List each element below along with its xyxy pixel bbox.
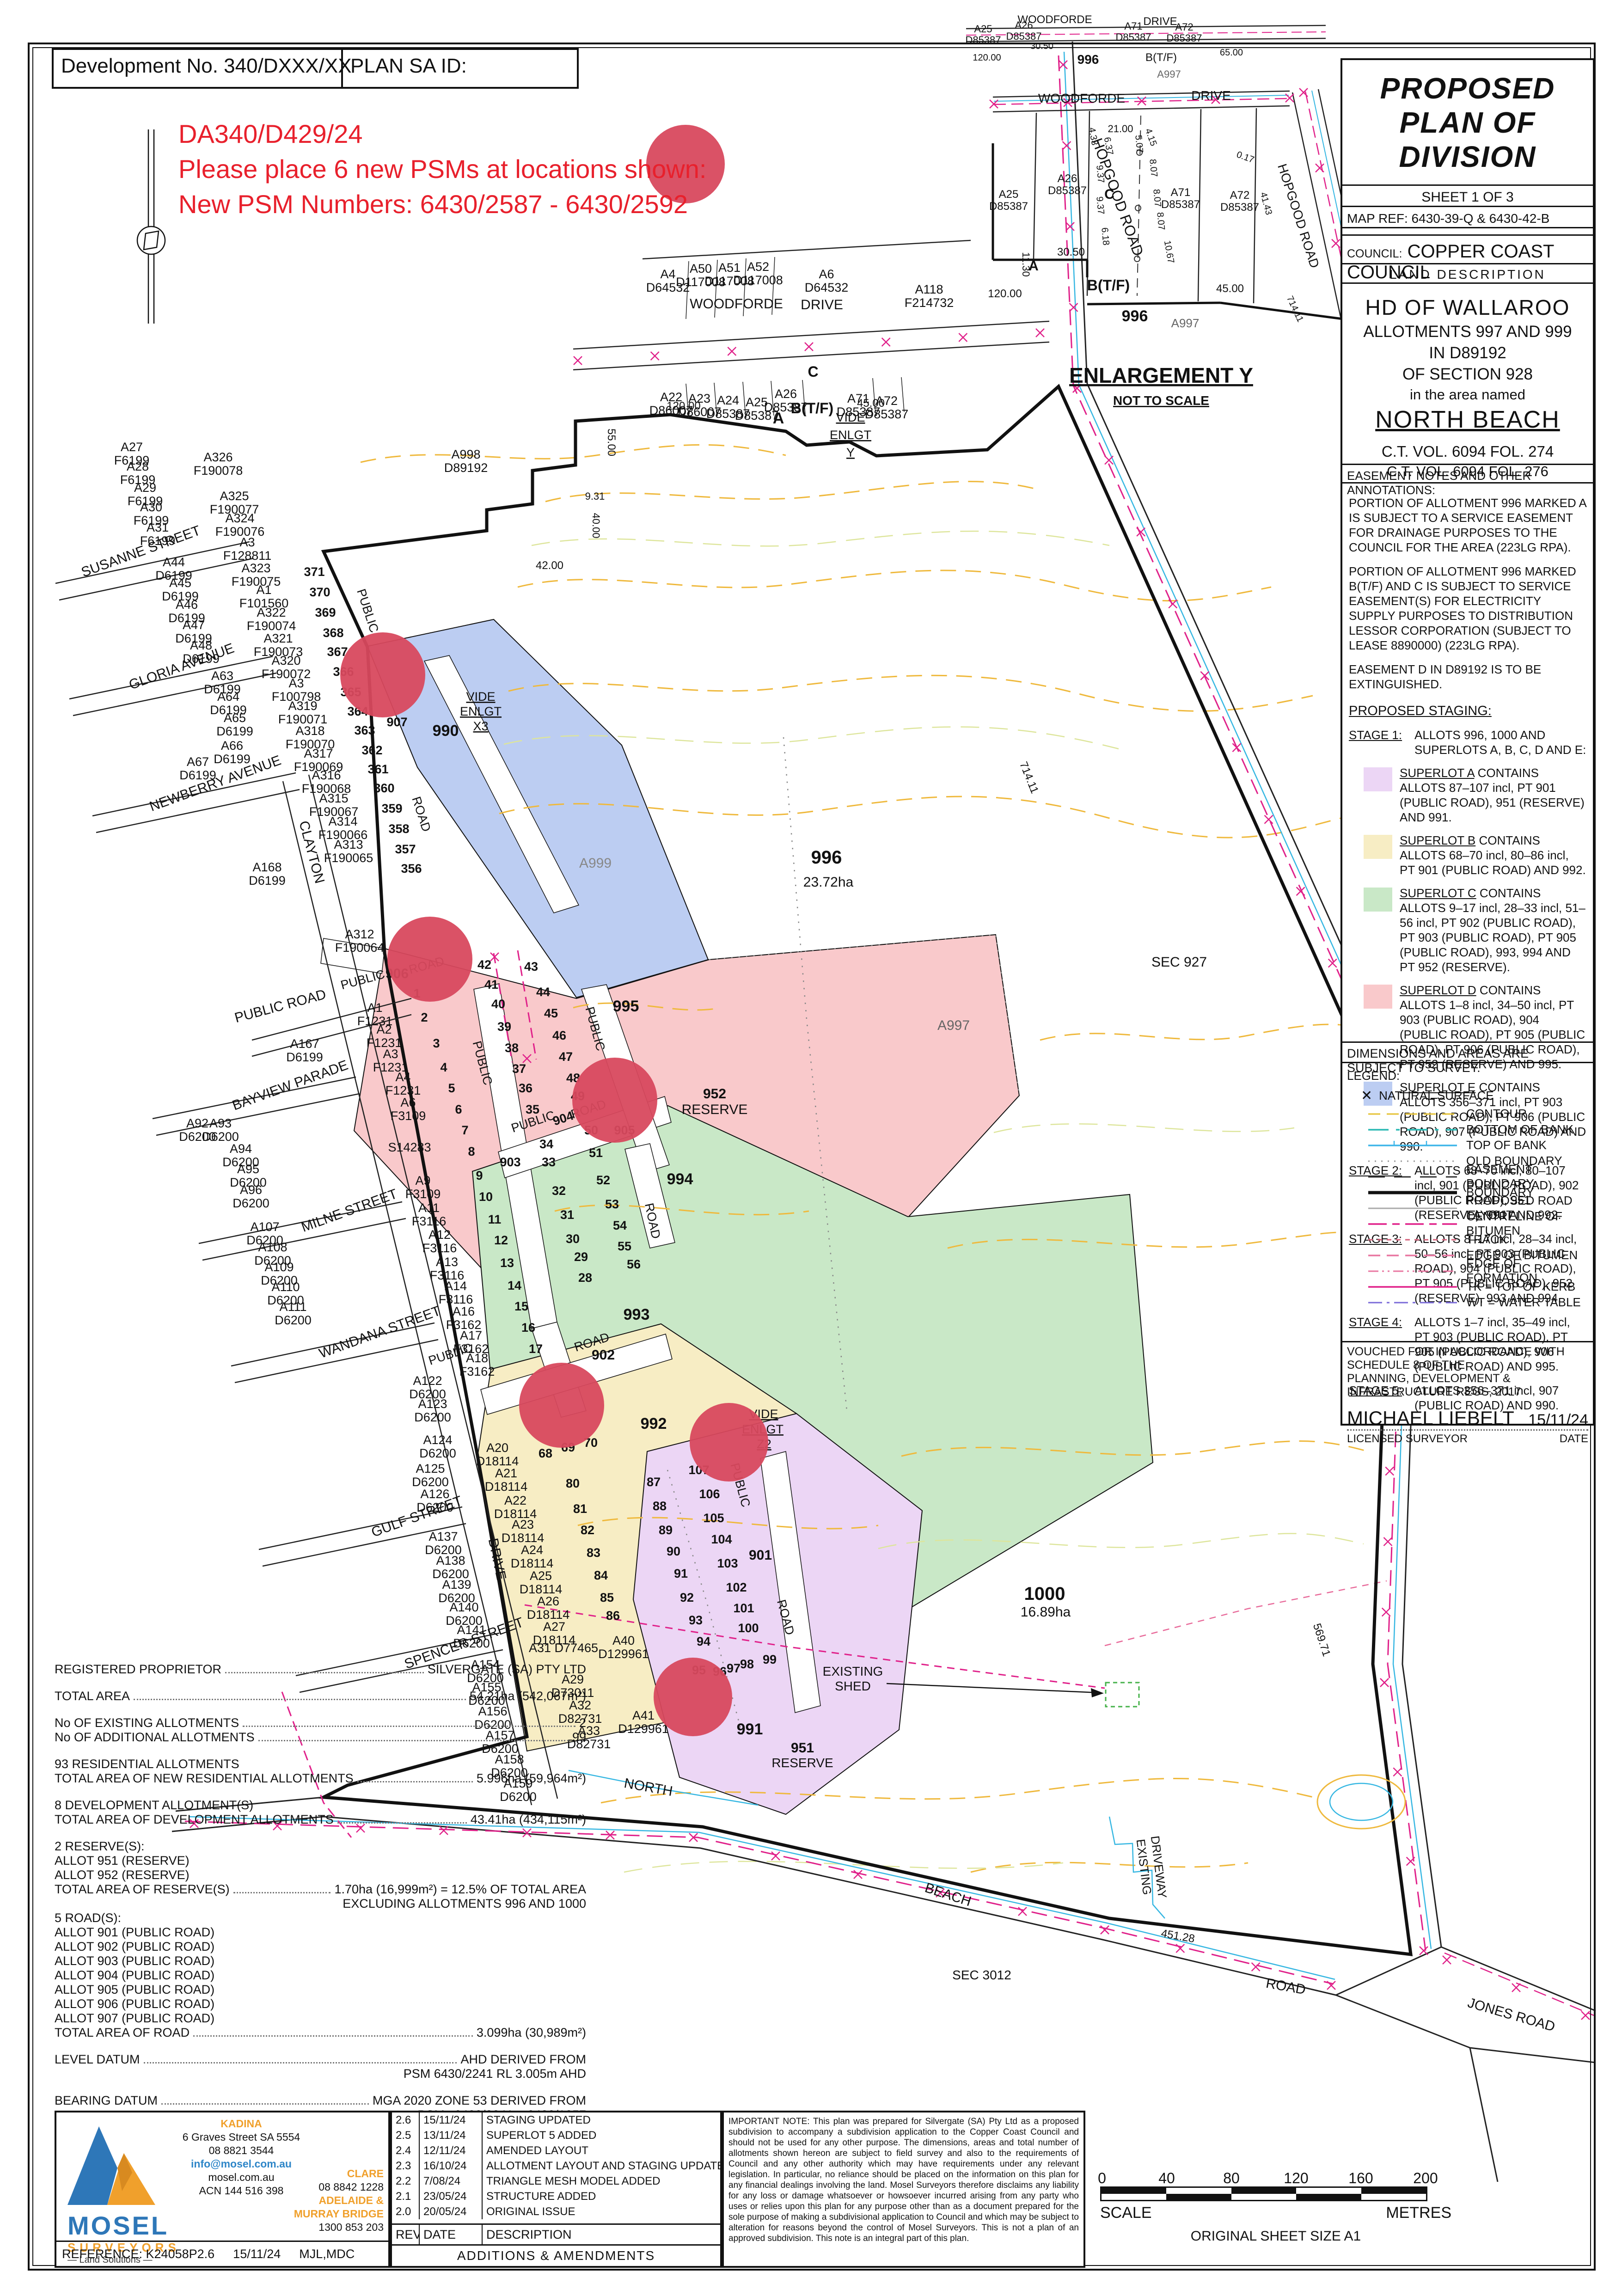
map-label: 120.00: [988, 288, 1022, 300]
psm-location-marker: [654, 1658, 732, 1736]
survey-cross-icon: [1200, 672, 1209, 680]
map-label: JONES ROAD: [1466, 1995, 1557, 2034]
superlot-entry: SUPERLOT A CONTAINS ALLOTS 87–107 incl, …: [1364, 765, 1586, 825]
map-label: 2: [421, 1010, 428, 1024]
natural-surface-label: NATURAL SURFACE: [1379, 1089, 1494, 1103]
psm-location-marker: [690, 1403, 768, 1482]
map-label: 10: [479, 1190, 493, 1204]
map-label: MILNE STREET: [300, 1186, 399, 1235]
legend-entry: CENTRELINE OF BITUMEN: [1366, 1216, 1588, 1231]
map-label: 1000: [1024, 1584, 1065, 1604]
psm-location-marker: [519, 1363, 604, 1448]
survey-cross-icon: [1512, 1984, 1520, 1992]
office-kadina: KADINA: [172, 2117, 311, 2131]
mosel-logo-icon: [63, 2117, 160, 2210]
map-label: 82: [581, 1523, 594, 1537]
map-label: WANDANA STREET: [317, 1303, 443, 1361]
survey-cross-icon: [1420, 1947, 1428, 1955]
map-label: 55: [618, 1239, 631, 1253]
map-label: 15: [514, 1299, 528, 1313]
plan-sa-id: PLAN SA ID:: [343, 50, 474, 87]
stage-1: STAGE 1: ALLOTS 996, 1000 AND SUPERLOTS …: [1349, 728, 1586, 757]
map-label: 99: [763, 1653, 777, 1666]
survey-cross-icon: [1105, 456, 1113, 464]
map-label: DRIVE: [1143, 15, 1177, 28]
plan-title: PROPOSED PLAN OF DIVISION: [1342, 60, 1593, 186]
stat-row: No OF ADDITIONAL ALLOTMENTS99: [55, 1730, 586, 1745]
map-label: A124D6200: [419, 1433, 456, 1460]
vouch-date: 15/11/24: [1528, 1411, 1588, 1429]
map-label: 16.89ha: [1021, 1604, 1071, 1620]
stat-row: ALLOT 901 (PUBLIC ROAD): [55, 1925, 586, 1940]
scale-label: SCALE: [1100, 2204, 1152, 2222]
legend-entry: TK = TOP OF KERB: [1366, 1279, 1588, 1294]
map-label: ENLARGEMENT Y: [1069, 363, 1253, 387]
map-label: 42.00: [536, 559, 563, 572]
email: info@mosel.com.au: [172, 2157, 311, 2171]
metres-label: METRES: [1386, 2204, 1451, 2222]
stage-1-label: STAGE 1:: [1349, 728, 1414, 757]
map-label: 8.07: [1147, 159, 1159, 178]
map-label: 105: [703, 1511, 724, 1525]
map-label: 370: [309, 585, 330, 599]
scale-ticks: 04080120160200: [1100, 2170, 1451, 2186]
map-label: 120.00: [667, 400, 700, 412]
survey-plan-sheet: { "header": {"development_no": "Developm…: [0, 0, 1622, 2296]
map-label: 32: [552, 1184, 566, 1198]
annotation-line-1: DA340/D429/24: [178, 116, 706, 152]
stat-row: 5 ROAD(S):: [55, 1911, 586, 1925]
annotation-line-2: Please place 6 new PSMs at locations sho…: [178, 152, 706, 187]
superlot-swatch: [1364, 767, 1392, 791]
map-label: A137D6200: [425, 1530, 462, 1557]
scale-tick: 40: [1158, 2170, 1175, 2187]
map-label: 13: [500, 1256, 514, 1270]
map-label: C: [1104, 187, 1114, 202]
map-label: 30.50: [1030, 41, 1053, 51]
map-label: 68: [539, 1446, 552, 1460]
map-label: 30.50: [1057, 246, 1085, 258]
scale-tick: 200: [1413, 2170, 1438, 2187]
stat-row: TOTAL AREA OF ROAD3.099ha (30,989m²): [55, 2026, 586, 2040]
map-label: RESERVE: [682, 1102, 748, 1117]
amendment-row: 2.615/11/24STAGING UPDATED: [392, 2112, 720, 2128]
clare-phone: 08 8842 1228: [294, 2180, 384, 2194]
map-label: WOODFORDE: [1038, 91, 1125, 105]
amendment-row: 2.27/08/24TRIANGLE MESH MODEL ADDED: [392, 2174, 720, 2189]
map-label: 9: [476, 1169, 483, 1182]
survey-cross-icon: [1384, 1537, 1392, 1546]
map-label: 359: [381, 802, 402, 815]
map-label: A126D6200: [416, 1487, 453, 1514]
map-label: 8.07: [1155, 212, 1166, 231]
map-label: 41: [484, 978, 498, 992]
survey-cross-icon: [1581, 2011, 1590, 2020]
survey-cross-icon: [1101, 1926, 1109, 1934]
col-rev: REV: [392, 2225, 420, 2244]
council-row: COUNCIL: COPPER COAST COUNCIL: [1342, 236, 1593, 264]
annotation-line-3: New PSM Numbers: 6430/2587 - 6430/2592: [178, 187, 706, 222]
surveyor-name: MICHAEL LIEBELT: [1347, 1407, 1514, 1429]
staging-heading: PROPOSED STAGING:: [1349, 704, 1586, 718]
map-label: A25D85387: [965, 23, 1001, 46]
survey-cross-icon: [651, 352, 659, 360]
col-date: DATE: [420, 2225, 483, 2244]
map-label: 45: [544, 1006, 558, 1020]
allotments: ALLOTMENTS 997 AND 999: [1347, 323, 1588, 341]
map-label: 87: [647, 1475, 661, 1489]
stat-row: TOTAL AREA54.21ha (542,067m²): [55, 1689, 586, 1703]
survey-cross-icon: [771, 1852, 780, 1860]
survey-cross-icon: [805, 343, 813, 351]
survey-cross-icon: [1380, 1678, 1389, 1687]
map-label: 97: [727, 1661, 741, 1675]
map-label: 34: [539, 1137, 553, 1151]
stat-row: ALLOT 905 (PUBLIC ROAD): [55, 1983, 586, 1997]
map-label: A997: [1157, 68, 1181, 80]
map-label: B(T/F): [1145, 51, 1177, 64]
map-label: Y: [846, 446, 855, 459]
map-label: 52: [596, 1173, 610, 1187]
map-label: 996: [811, 847, 842, 868]
survey-cross-icon: [1036, 329, 1044, 337]
scale-tick: 0: [1098, 2170, 1106, 2187]
amendment-row: 2.123/05/24STRUCTURE ADDED: [392, 2189, 720, 2204]
map-label: A: [773, 410, 784, 427]
scale-bar-area: 04080120160200 SCALE METRES ORIGINAL SHE…: [1100, 2170, 1451, 2244]
stat-row: LEVEL DATUMAHD DERIVED FROM: [55, 2052, 586, 2067]
stat-row: ALLOT 904 (PUBLIC ROAD): [55, 1968, 586, 1983]
map-label: EXISTING: [823, 1664, 883, 1678]
psm-location-marker: [340, 632, 425, 717]
map-label: 994: [667, 1170, 693, 1188]
scale-tick: 120: [1284, 2170, 1308, 2187]
map-label: 3: [433, 1036, 440, 1050]
office-murray-bridge: MURRAY BRIDGE: [294, 2207, 384, 2221]
map-label: 9.31: [585, 490, 605, 502]
map-label: 451.28: [1160, 1927, 1196, 1945]
psm-annotation: DA340/D429/24 Please place 6 new PSMs at…: [178, 116, 706, 222]
survey-cross-icon: [1176, 1944, 1184, 1953]
map-label: 902: [592, 1347, 615, 1363]
survey-cross-icon: [1232, 743, 1241, 752]
map-label: 992: [641, 1415, 667, 1433]
map-label: 38: [505, 1041, 519, 1055]
map-label: A118F214732: [905, 282, 954, 310]
stat-row: ALLOT 906 (PUBLIC ROAD): [55, 1997, 586, 2011]
map-label: X3: [473, 719, 488, 733]
stat-row: TOTAL AREA OF RESERVE(S)1.70ha (16,999m²…: [55, 1882, 586, 1897]
map-label: A6D64532: [805, 267, 849, 294]
map-label: 92: [680, 1591, 694, 1604]
map-label: DRIVE: [801, 297, 843, 312]
stat-row: 93 RESIDENTIAL ALLOTMENTS: [55, 1757, 586, 1771]
map-label: 44: [536, 985, 550, 999]
survey-cross-icon: [728, 347, 736, 355]
map-label: ROAD: [409, 795, 434, 833]
map-label: 951: [791, 1740, 814, 1756]
utility-line-symbol: [137, 129, 165, 324]
survey-cross-icon: [959, 333, 967, 342]
legend-entry: WT = WATER TABLE: [1366, 1294, 1588, 1310]
land-description: HD OF WALLAROO ALLOTMENTS 997 AND 999 IN…: [1342, 284, 1593, 465]
map-label: 37: [512, 1062, 526, 1076]
map-label: 361: [367, 762, 388, 776]
map-label: 40: [491, 997, 505, 1011]
map-label: 11: [488, 1212, 502, 1226]
woodforde-drive-lines: [573, 240, 1049, 418]
survey-cross-icon: [1316, 164, 1324, 172]
stat-row: No OF EXISTING ALLOTMENTS2: [55, 1716, 586, 1730]
office-clare: CLARE: [294, 2167, 384, 2180]
map-label: 46: [552, 1029, 566, 1042]
superlot-swatch: [1364, 888, 1392, 912]
amendment-row: 2.020/05/24ORIGINAL ISSUE: [392, 2204, 720, 2219]
survey-cross-icon: [1070, 303, 1078, 312]
map-label: 12: [494, 1233, 508, 1247]
amendment-row: 2.513/11/24SUPERLOT 5 ADDED: [392, 2128, 720, 2143]
amendments-footer: ADDITIONS & AMENDMENTS: [392, 2246, 720, 2266]
map-label: 7: [461, 1123, 468, 1137]
survey-cross-icon: [1299, 88, 1308, 97]
stage-1-text: ALLOTS 996, 1000 AND SUPERLOTS A, B, C, …: [1414, 728, 1586, 757]
amendments-table: 2.615/11/24STAGING UPDATED2.513/11/24SUP…: [390, 2111, 722, 2268]
surveyor-logo-block: MOSEL SURVEYORS — Land Solutions — KADIN…: [55, 2111, 390, 2268]
survey-cross-icon: [1265, 815, 1273, 824]
map-label: BAYVIEW PARADE: [230, 1057, 350, 1113]
map-label: 6.18: [1099, 227, 1111, 246]
superlot-entry: SUPERLOT B CONTAINS ALLOTS 68–70 incl, 8…: [1364, 833, 1586, 877]
sheet-number: SHEET 1 OF 3: [1342, 186, 1593, 207]
map-label: VIDE: [836, 410, 865, 424]
map-label: A997: [1171, 316, 1200, 330]
reference-initials: MJL,MDC: [299, 2247, 355, 2261]
map-label: A31 D77465: [529, 1641, 598, 1655]
phone-1300: 1300 853 203: [294, 2221, 384, 2234]
natural-surface-icon: ✕: [1361, 1088, 1372, 1104]
map-label: WOODFORDE: [690, 296, 783, 312]
brand-name: MOSEL: [67, 2210, 180, 2241]
map-label: ROAD: [1265, 1976, 1307, 1998]
office-adelaide: ADELAIDE &: [294, 2194, 384, 2207]
surveyor-role: LICENSED SURVEYOR: [1347, 1433, 1468, 1445]
easement-paragraphs: PORTION OF ALLOTMENT 996 MARKED A IS SUB…: [1347, 496, 1588, 692]
area-name: NORTH BEACH: [1347, 406, 1588, 434]
amendment-row: 2.412/11/24AMENDED LAYOUT: [392, 2143, 720, 2158]
stat-row: 2 RESERVE(S):: [55, 1839, 586, 1854]
map-label: 83: [587, 1546, 600, 1560]
map-label: A138D6200: [432, 1554, 469, 1581]
map-label: A25D85387: [989, 188, 1028, 213]
easement-note: PORTION OF ALLOTMENT 996 MARKED B(T/F) A…: [1349, 564, 1586, 653]
map-label: DRIVE: [1191, 88, 1231, 103]
survey-cross-icon: [574, 356, 582, 365]
spacer: [1342, 228, 1593, 236]
survey-cross-icon: [1252, 1963, 1260, 1971]
sheet-size-note: ORIGINAL SHEET SIZE A1: [1100, 2229, 1451, 2244]
map-label: 368: [323, 626, 343, 640]
map-label: 9.37: [1094, 165, 1106, 184]
map-label: B(T/F): [1087, 277, 1130, 294]
map-label: SEC 3012: [952, 1968, 1011, 1982]
map-label: A71D85387: [1161, 186, 1200, 211]
section: OF SECTION 928: [1347, 365, 1588, 384]
map-label: B(T/F): [791, 400, 833, 416]
development-number: Development No. 340/DXXX/XX: [54, 50, 343, 87]
map-label: 93: [689, 1613, 703, 1627]
map-label: 54: [613, 1218, 627, 1232]
map-label: 88: [653, 1499, 667, 1513]
map-label: 10.67: [1162, 239, 1176, 264]
deposited-plan: IN D89192: [1347, 344, 1588, 362]
map-label: 106: [699, 1487, 720, 1501]
important-note: IMPORTANT NOTE: This plan was prepared f…: [722, 2111, 1085, 2268]
map-label: 369: [315, 606, 336, 619]
map-label: 51: [589, 1146, 603, 1160]
survey-cross-icon: [1059, 61, 1067, 69]
office-address: 6 Graves Street SA 5554: [172, 2131, 311, 2144]
office-phone: 08 8821 3544: [172, 2144, 311, 2157]
map-label: 5: [448, 1081, 455, 1095]
date-label: DATE: [1560, 1433, 1588, 1445]
easement-notes-and-staging: PORTION OF ALLOTMENT 996 MARKED A IS SUB…: [1342, 484, 1593, 1043]
map-label: A997: [937, 1018, 970, 1033]
map-label: C: [808, 363, 818, 380]
map-label: 84: [594, 1568, 608, 1582]
survey-cross-icon: [1385, 1467, 1394, 1476]
stat-row: TOTAL AREA OF DEVELOPMENT ALLOTMENTS43.4…: [55, 1812, 586, 1827]
legend-entry: BOTTOM OF BANK: [1366, 1121, 1588, 1137]
header-bar: Development No. 340/DXXX/XX PLAN SA ID:: [52, 48, 579, 89]
scale-tick: 160: [1348, 2170, 1373, 2187]
easement-note: EASEMENT D IN D89192 IS TO BE EXTINGUISH…: [1349, 662, 1586, 692]
map-label: 30: [566, 1232, 580, 1246]
map-label: 90: [667, 1544, 680, 1558]
stat-row: TOTAL AREA OF NEW RESIDENTIAL ALLOTMENTS…: [55, 1771, 586, 1786]
map-label: 41.43: [1258, 191, 1274, 216]
map-label: VIDE: [466, 690, 495, 704]
existing-shed: [887, 1683, 1139, 1707]
map-label: 36: [519, 1081, 533, 1095]
survey-cross-icon: [1063, 141, 1071, 150]
map-label: 371: [304, 565, 324, 579]
stat-row: ALLOT 952 (RESERVE): [55, 1868, 586, 1882]
map-label: 53: [605, 1197, 619, 1211]
map-label: 29: [574, 1250, 588, 1264]
hundred: HD OF WALLAROO: [1347, 295, 1588, 320]
survey-cross-icon: [1018, 1907, 1027, 1916]
map-label: 33: [542, 1155, 556, 1169]
map-label: 55.00: [605, 429, 618, 456]
amendment-rows: 2.615/11/24STAGING UPDATED2.513/11/24SUP…: [392, 2112, 720, 2219]
amendment-row: 2.316/10/24ALLOTMENT LAYOUT AND STAGING …: [392, 2158, 720, 2174]
map-label: A52D117008: [733, 260, 783, 287]
map-label: 16: [521, 1321, 535, 1335]
map-label: 9.37: [1094, 196, 1106, 215]
map-label: 4.15: [1143, 127, 1159, 147]
map-label: 714.11: [1285, 294, 1305, 324]
map-label: 363: [354, 723, 375, 737]
map-label: 21.00: [1108, 123, 1133, 135]
website: mosel.com.au: [172, 2171, 311, 2184]
map-label: 80: [566, 1476, 580, 1490]
map-label: A14F3116: [439, 1279, 473, 1306]
map-label: 102: [726, 1580, 747, 1594]
title-block: PROPOSED PLAN OF DIVISION SHEET 1 OF 3 M…: [1340, 58, 1595, 1426]
map-label: A167D6199: [286, 1037, 323, 1064]
map-label: 23.72ha: [803, 875, 854, 890]
survey-cross-icon: [882, 338, 890, 346]
map-label: 120.00: [973, 53, 1001, 63]
psm-location-marker: [572, 1058, 657, 1143]
map-label: 990: [433, 722, 459, 740]
map-label: HOPGOOD ROAD: [1275, 162, 1322, 270]
map-label: A312F190064: [335, 927, 385, 955]
map-ref: MAP REF: 6430-39-Q & 6430-42-B: [1342, 207, 1593, 228]
map-label: 995: [613, 998, 639, 1015]
map-label: A123D6200: [414, 1397, 451, 1424]
map-label: 907: [386, 715, 407, 729]
map-label: 56: [627, 1257, 641, 1271]
map-label: 8: [468, 1145, 475, 1158]
map-label: 991: [737, 1720, 763, 1738]
map-label: 85: [600, 1591, 614, 1604]
map-label: S14283: [388, 1140, 431, 1154]
map-label: 4: [440, 1060, 447, 1074]
map-label: 101: [733, 1601, 754, 1615]
map-label: 360: [373, 781, 394, 795]
acn: ACN 144 516 398: [172, 2184, 311, 2198]
map-label: 31: [560, 1208, 574, 1222]
map-label: 103: [717, 1556, 738, 1570]
map-label: 362: [361, 743, 382, 757]
survey-cross-icon: [1066, 222, 1074, 231]
map-label: A3F128811: [223, 535, 272, 563]
map-label: A111D6200: [275, 1300, 312, 1327]
superlot-swatch: [1364, 985, 1392, 1009]
map-label: 0.17: [1235, 149, 1255, 165]
map-label: A141D6200: [453, 1623, 490, 1650]
map-label: 5.07: [1133, 135, 1145, 153]
map-label: NORTH: [623, 1776, 674, 1799]
map-label: A66D6199: [214, 739, 251, 766]
superlot-entry: SUPERLOT C CONTAINS ALLOTS 9–17 incl, 28…: [1364, 886, 1586, 974]
map-label: A72D85387: [1220, 189, 1259, 214]
map-label: 45.00: [857, 397, 885, 410]
map-label: 714.11: [1017, 760, 1041, 796]
stat-row: EXCLUDING ALLOTMENTS 996 AND 1000: [55, 1897, 586, 1911]
stat-row: REGISTERED PROPRIETORSILVERGATE (SA) PTY…: [55, 1662, 586, 1677]
stat-row: ALLOT 907 (PUBLIC ROAD): [55, 2011, 586, 2026]
legend-entry: EASEMENT BOUNDARY: [1366, 1169, 1588, 1184]
survey-cross-icon: [1443, 1956, 1451, 1964]
map-label: ENLGT: [830, 428, 871, 442]
amendments-header: REV DATE DESCRIPTION: [392, 2223, 720, 2246]
map-label: 81: [573, 1502, 587, 1516]
map-label: 6: [455, 1102, 462, 1116]
psm-location-marker: [387, 917, 472, 1002]
stat-row: ALLOT 951 (RESERVE): [55, 1854, 586, 1868]
council-label: COUNCIL:: [1347, 247, 1402, 260]
map-label: A999: [579, 856, 612, 871]
map-label: 358: [388, 822, 409, 836]
map-label: SEC 927: [1151, 955, 1207, 970]
map-label: 40.00: [590, 513, 602, 538]
scale-tick: 80: [1223, 2170, 1240, 2187]
map-label: A13F3116: [430, 1255, 465, 1282]
easement-note: PORTION OF ALLOTMENT 996 MARKED A IS SUB…: [1349, 496, 1586, 555]
map-label: 94: [697, 1635, 710, 1648]
